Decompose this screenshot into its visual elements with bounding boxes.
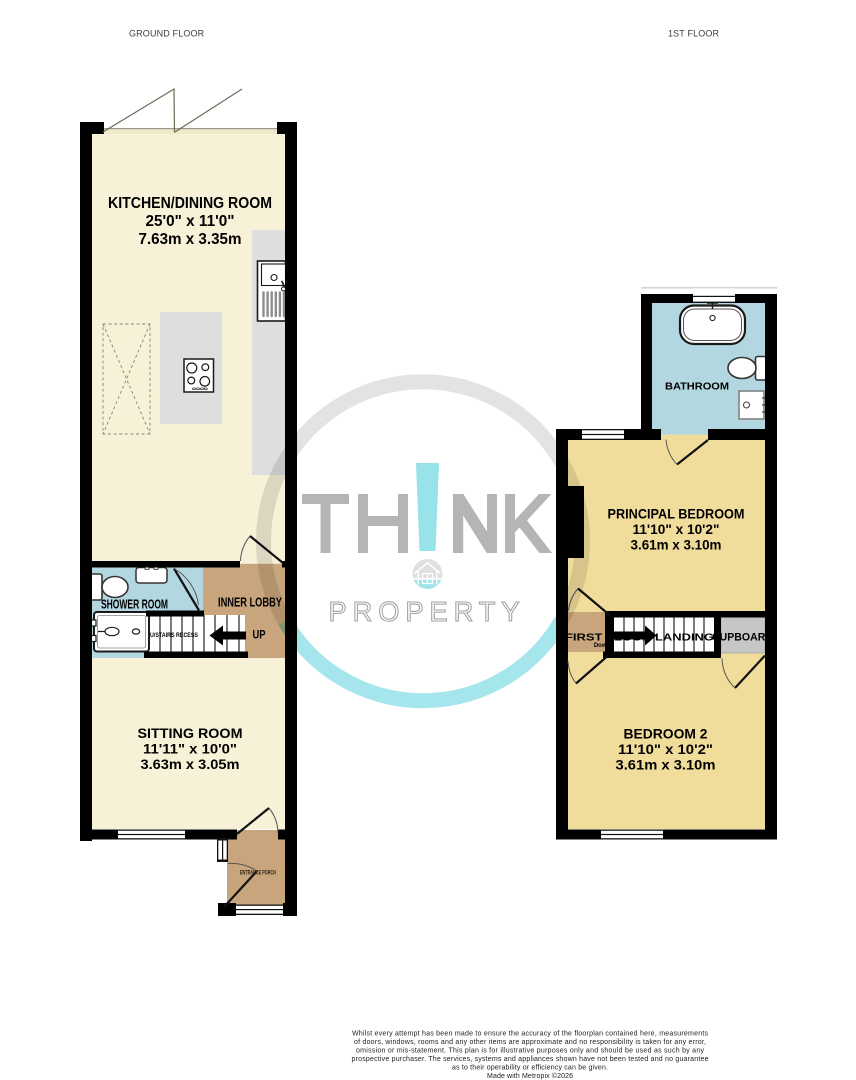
svg-text:25'0" x 11'0": 25'0" x 11'0" (146, 213, 235, 230)
svg-text:as to their operability or eff: as to their operability or efficiency ca… (452, 1065, 608, 1072)
svg-text:7.63m x 3.35m: 7.63m x 3.35m (139, 231, 242, 248)
svg-text:SITTING ROOM: SITTING ROOM (138, 725, 243, 741)
svg-text:KITCHEN/DINING ROOM: KITCHEN/DINING ROOM (108, 195, 272, 212)
svg-text:11'10" x 10'2": 11'10" x 10'2" (618, 741, 713, 757)
svg-text:Down: Down (594, 643, 611, 649)
svg-text:11'10" x 10'2": 11'10" x 10'2" (633, 521, 720, 537)
svg-text:prospective purchaser. The ser: prospective purchaser. The services, sys… (352, 1056, 709, 1063)
svg-text:11'11" x 10'0": 11'11" x 10'0" (143, 741, 237, 757)
svg-text:GROUND FLOOR: GROUND FLOOR (129, 29, 205, 39)
svg-text:FIRST FLOOR LANDING: FIRST FLOOR LANDING (565, 632, 714, 644)
svg-text:BEDROOM 2: BEDROOM 2 (624, 725, 708, 741)
svg-text:Made with Metropix ©2026: Made with Metropix ©2026 (487, 1072, 573, 1080)
svg-text:UP: UP (253, 630, 266, 642)
svg-text:3.63m x 3.05m: 3.63m x 3.05m (141, 756, 240, 772)
svg-text:BATHROOM: BATHROOM (665, 381, 729, 393)
svg-text:SHOWER ROOM: SHOWER ROOM (101, 598, 168, 612)
svg-text:3.61m x 3.10m: 3.61m x 3.10m (631, 537, 722, 553)
svg-text:Whilst every attempt has been: Whilst every attempt has been made to en… (352, 1031, 709, 1038)
svg-text:1ST FLOOR: 1ST FLOOR (668, 29, 720, 39)
svg-text:omission or mis-statement. Thi: omission or mis-statement. This plan is … (356, 1048, 705, 1055)
svg-text:of doors, windows, rooms and a: of doors, windows, rooms and any other i… (354, 1039, 706, 1046)
svg-text:PRINCIPAL BEDROOM: PRINCIPAL BEDROOM (608, 506, 745, 522)
svg-text:CUPBOARD: CUPBOARD (712, 632, 773, 644)
svg-text:ENTRANCE PORCH: ENTRANCE PORCH (240, 870, 276, 877)
svg-text:3.61m x 3.10m: 3.61m x 3.10m (616, 757, 716, 773)
svg-text:PROPERTY: PROPERTY (329, 596, 526, 627)
svg-text:U/STAIRS RECESS: U/STAIRS RECESS (150, 632, 198, 639)
